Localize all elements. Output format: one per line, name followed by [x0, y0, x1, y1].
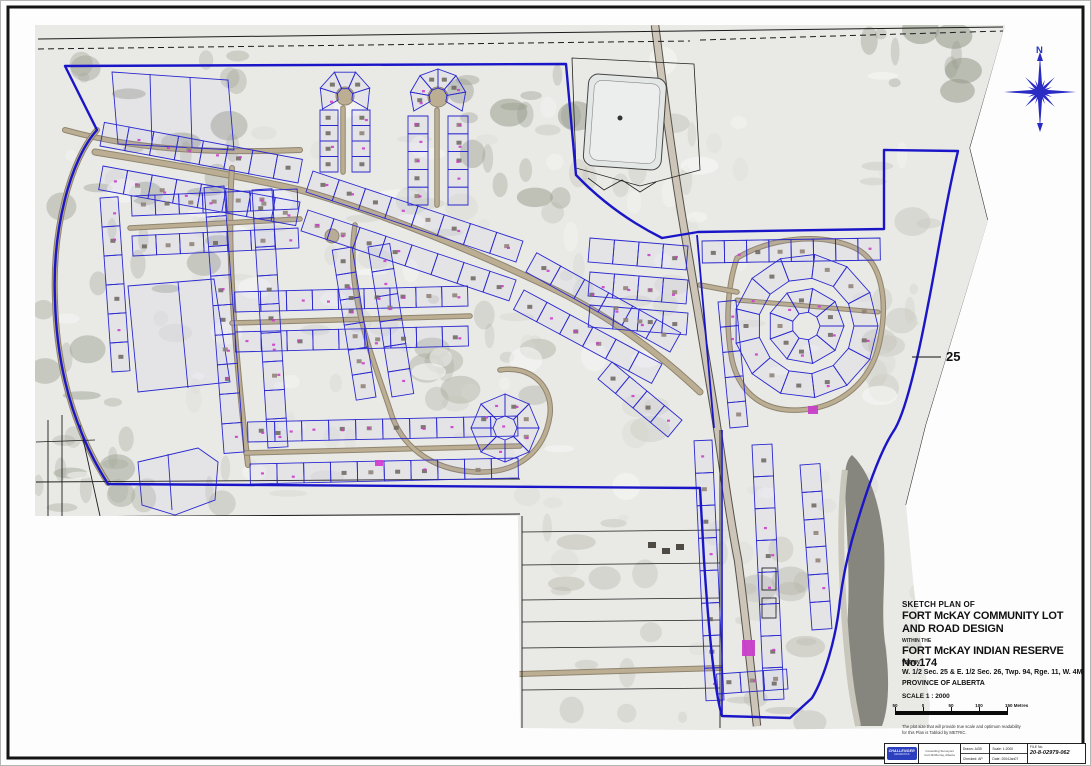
company-address: Consulting Surveyors Fort McMurray, Albe…	[919, 744, 960, 763]
terrain-patch	[330, 374, 342, 393]
lot-number	[596, 342, 599, 344]
building	[213, 241, 218, 245]
building	[726, 680, 731, 684]
lot-number	[362, 362, 365, 364]
lot-number	[402, 210, 405, 212]
lot	[277, 463, 304, 484]
lot-number	[753, 680, 756, 682]
lot-number	[316, 224, 319, 226]
building	[800, 249, 805, 253]
drawn-checked-cell: Drawn: AGB Checked: AP	[961, 744, 991, 763]
terrain-patch	[493, 173, 508, 198]
lot-number	[362, 147, 365, 149]
building	[342, 471, 347, 475]
lot-number	[114, 180, 117, 182]
terrain-patch	[891, 38, 900, 66]
lot	[313, 329, 339, 350]
scale-label: Scale:	[992, 747, 1001, 751]
lot	[448, 187, 468, 205]
lot-number	[330, 101, 333, 103]
address-line-2: Fort McMurray, Alberta	[925, 754, 955, 758]
lot-number	[113, 239, 116, 241]
terrain-patch	[541, 202, 564, 224]
scale-label-3: 100	[975, 703, 983, 708]
lot	[754, 476, 775, 509]
lot-number	[260, 200, 263, 202]
building	[393, 250, 398, 254]
lot-number	[278, 436, 281, 438]
lot-number	[225, 377, 228, 379]
lot-number	[507, 247, 510, 249]
building	[326, 116, 331, 120]
terrain-patch	[917, 218, 942, 228]
terrain-patch	[557, 534, 596, 549]
lot	[723, 351, 743, 378]
lot	[836, 238, 859, 260]
lot	[613, 240, 639, 266]
lot-number	[302, 299, 305, 301]
terrain-patch	[29, 358, 61, 384]
highlight-parcel	[375, 460, 383, 466]
terrain-patch	[618, 515, 629, 521]
lot-number	[365, 119, 368, 121]
lot	[220, 393, 242, 424]
lot	[755, 508, 776, 541]
scale-label-1: 0	[922, 703, 925, 708]
building	[828, 333, 833, 337]
lot-number	[457, 230, 460, 232]
checked-value: AP	[978, 757, 983, 761]
lot-number	[402, 380, 405, 382]
lot-number	[641, 324, 644, 326]
lot-number	[422, 90, 425, 92]
terrain-patch	[540, 97, 556, 118]
building	[761, 458, 766, 462]
building	[341, 259, 346, 263]
lot-number	[375, 342, 378, 344]
terrain-patch	[889, 78, 901, 87]
lot-number	[647, 254, 650, 256]
building	[772, 682, 777, 686]
building	[825, 268, 830, 272]
building	[769, 373, 774, 377]
lot	[104, 255, 124, 285]
building	[426, 294, 431, 298]
building	[769, 275, 774, 279]
lot-number	[731, 338, 734, 340]
lot-number	[459, 124, 462, 126]
terrain-patch	[543, 513, 552, 541]
building	[188, 201, 193, 205]
title-line-6: WITHIN	[902, 661, 1087, 666]
terrain-patch	[686, 212, 707, 223]
scale-date-cell: Scale: 1:2000 Date: 2004Jan07	[990, 744, 1027, 763]
north-label: N	[1036, 45, 1043, 56]
terrain-patch	[499, 377, 510, 390]
building	[118, 355, 123, 359]
lot-number	[672, 294, 675, 296]
lot-number	[499, 451, 502, 453]
lot-number	[701, 455, 704, 457]
lot-number	[185, 195, 188, 197]
building	[799, 350, 804, 354]
lot-number	[764, 527, 767, 529]
terrain-patch	[897, 142, 907, 169]
title-line-4: WITHIN THE	[902, 639, 1087, 644]
lot-number	[627, 289, 630, 291]
title-line-7: W. 1/2 Sec. 25 & E. 1/2 Sec. 26, Twp. 94…	[902, 669, 1087, 676]
building	[320, 183, 325, 187]
building	[359, 162, 364, 166]
building	[267, 288, 272, 292]
building	[442, 78, 447, 82]
terrain-patch	[221, 455, 231, 481]
lot	[810, 601, 832, 630]
building	[862, 338, 867, 342]
terrain-patch	[108, 479, 128, 503]
lot-number	[235, 436, 238, 438]
terrain-patch	[910, 284, 918, 295]
compass-center	[1037, 89, 1043, 95]
lot	[227, 230, 252, 251]
building	[662, 548, 670, 554]
building	[326, 147, 331, 151]
terrain-patch	[70, 335, 106, 363]
lot-number	[222, 288, 225, 290]
building	[848, 284, 853, 288]
terrain-patch	[186, 386, 202, 413]
lot	[588, 305, 614, 329]
building	[457, 141, 462, 145]
lot-number	[457, 296, 460, 298]
lot-number	[367, 427, 370, 429]
building	[778, 324, 783, 328]
lot	[408, 134, 428, 152]
building	[711, 251, 716, 255]
building	[648, 542, 656, 548]
building	[395, 470, 400, 474]
terrain-patch	[442, 396, 469, 411]
building	[272, 374, 277, 378]
building	[349, 296, 354, 300]
lot-number	[574, 330, 577, 332]
section-number: 25	[946, 349, 960, 364]
building	[799, 298, 804, 302]
lot	[274, 228, 299, 249]
building	[825, 380, 830, 384]
file-label: FILE No.	[1030, 745, 1083, 749]
terrain-patch	[796, 638, 816, 646]
lot-number	[615, 311, 618, 313]
lot	[264, 389, 286, 419]
lot-number	[547, 270, 550, 272]
building	[524, 417, 529, 421]
building	[755, 250, 760, 254]
terrain-patch	[169, 625, 198, 646]
scale-label-0: 50	[892, 703, 897, 708]
building	[326, 162, 331, 166]
building	[425, 218, 430, 222]
terrain-patch	[418, 607, 434, 618]
lot-number	[290, 430, 293, 432]
lot-number	[485, 416, 488, 418]
lot-number	[419, 141, 422, 143]
terrain-patch	[706, 133, 722, 153]
building	[476, 468, 481, 472]
lot	[372, 269, 398, 297]
compass-south-arrow	[1037, 123, 1043, 132]
lot-number	[869, 248, 872, 250]
drawn-label: Drawn:	[963, 747, 974, 751]
lot-number	[325, 184, 328, 186]
lot	[438, 459, 465, 480]
building	[778, 250, 783, 254]
lot-number	[272, 319, 275, 321]
building	[541, 266, 546, 270]
building	[283, 211, 288, 215]
date-value: 2004Jan07	[1001, 757, 1018, 761]
plot-note-2: for this Plan is Tabloid by METRIC.	[902, 730, 967, 735]
terrain-patch	[412, 363, 446, 380]
building	[221, 318, 226, 322]
lot-number	[163, 191, 166, 193]
lot-number	[788, 309, 791, 311]
scale-label-2: 50	[948, 703, 953, 708]
lot	[249, 150, 278, 178]
lot	[700, 570, 719, 603]
lot-number	[167, 147, 170, 149]
lot-number	[261, 472, 264, 474]
terrain-patch	[546, 154, 564, 170]
terrain-patch	[640, 622, 662, 642]
lot-number	[667, 420, 670, 422]
highlight-parcel	[808, 406, 818, 414]
checked-label: Checked:	[963, 757, 977, 761]
building	[744, 324, 749, 328]
terrain-patch	[383, 671, 406, 688]
terrain-patch	[67, 472, 93, 479]
building	[702, 487, 707, 491]
lot-number	[822, 587, 825, 589]
lot-number	[383, 260, 386, 262]
lot	[209, 245, 231, 276]
lot-number	[113, 212, 116, 214]
building	[736, 412, 741, 416]
lot-number	[602, 286, 605, 288]
building	[355, 83, 360, 87]
title-line-1: SKETCH PLAN OF	[902, 601, 1087, 609]
terrain-patch	[104, 398, 122, 407]
building	[661, 333, 666, 337]
lot-number	[451, 426, 454, 428]
lot-number	[277, 374, 280, 376]
terrain-patch	[563, 222, 578, 252]
lot-number	[833, 334, 836, 336]
lot	[808, 574, 830, 603]
logo-subtext: GEOMATICS	[894, 754, 909, 757]
terrain-patch	[483, 518, 497, 547]
terrain-patch	[731, 116, 747, 129]
lot-number	[351, 193, 354, 195]
lot-number	[227, 350, 230, 352]
terrain-patch	[500, 103, 527, 111]
lot	[699, 538, 718, 571]
terrain-patch	[443, 569, 468, 598]
company-logo-cell: CHALLENGER GEOMATICS	[885, 744, 919, 763]
lot	[261, 331, 287, 352]
lot-number	[417, 160, 420, 162]
terrain-patch	[476, 134, 498, 145]
scale-label-4: 150 Metres	[1005, 703, 1028, 708]
building	[613, 306, 618, 310]
terrain-patch	[560, 697, 584, 723]
lot-number	[755, 353, 758, 355]
lot-number	[216, 154, 219, 156]
lot-number	[348, 287, 351, 289]
building	[326, 131, 331, 135]
lot-number	[292, 476, 295, 478]
lot-number	[327, 301, 330, 303]
building	[276, 431, 281, 435]
lot-number	[384, 283, 387, 285]
building	[359, 116, 364, 120]
lot	[254, 217, 276, 247]
building	[375, 337, 380, 341]
building	[286, 166, 291, 170]
building	[766, 554, 771, 558]
lot-number	[239, 156, 242, 158]
lot	[286, 290, 312, 311]
lot-number	[631, 395, 634, 397]
building	[815, 558, 820, 562]
lot	[437, 417, 464, 438]
terrain-patch	[678, 711, 687, 722]
lot-number	[457, 178, 460, 180]
terrain-patch	[627, 190, 641, 214]
terrain-patch	[262, 654, 275, 678]
lot-number	[495, 405, 498, 407]
lot-number	[423, 428, 426, 430]
building	[353, 334, 358, 338]
lot-number	[419, 195, 422, 197]
terrain-patch	[881, 320, 920, 327]
lot-number	[397, 250, 400, 252]
lot	[100, 197, 120, 227]
terrain-patch	[332, 552, 360, 579]
lot	[588, 238, 614, 264]
building	[453, 335, 458, 339]
terrain-patch	[617, 704, 636, 723]
terrain-patch	[79, 73, 90, 83]
building	[417, 98, 422, 102]
building	[212, 200, 217, 204]
title-line-2: FORT McKAY COMMUNITY LOT	[902, 611, 1087, 623]
terrain-patch	[548, 576, 585, 591]
lot	[725, 376, 745, 403]
lot-number	[389, 308, 392, 310]
lot-number	[515, 406, 518, 408]
building	[368, 470, 373, 474]
lot-number	[768, 587, 771, 589]
lot-number	[273, 349, 276, 351]
building	[527, 305, 532, 309]
date-label: Date:	[992, 757, 1000, 761]
lot-number	[209, 202, 212, 204]
terrain-patch	[862, 386, 897, 406]
terrain-patch	[226, 50, 249, 61]
building	[367, 241, 372, 245]
building	[828, 315, 833, 319]
terrain-patch	[251, 126, 277, 139]
terrain-patch	[733, 158, 749, 181]
lot-number	[287, 214, 290, 216]
lot	[718, 300, 738, 327]
terrain-patch	[34, 475, 44, 497]
lot-number	[137, 139, 140, 141]
building	[415, 176, 420, 180]
lot-large	[112, 72, 234, 150]
lot-number	[752, 300, 755, 302]
lot	[312, 289, 338, 310]
building	[347, 192, 352, 196]
lot-number	[827, 385, 830, 387]
lot-number	[423, 468, 426, 470]
building	[646, 406, 651, 410]
lot-number	[420, 102, 423, 104]
building	[394, 426, 399, 430]
terrain-patch	[793, 710, 826, 734]
building	[452, 86, 457, 90]
lot-number	[272, 344, 275, 346]
building	[471, 276, 476, 280]
terrain-patch	[118, 426, 133, 451]
lot	[304, 462, 331, 483]
lot-number	[188, 150, 191, 152]
building	[452, 227, 457, 231]
lot-number	[458, 337, 461, 339]
building	[330, 83, 335, 87]
terrain-patch	[448, 514, 476, 537]
lot	[273, 189, 298, 210]
building	[611, 377, 616, 381]
scale-bar: 50 0 50 100 150 Metres	[895, 703, 1015, 717]
lot-number	[459, 146, 462, 148]
building	[672, 290, 677, 294]
lot	[352, 141, 370, 157]
title-line-8: PROVINCE OF ALBERTA	[902, 680, 1087, 687]
terrain-patch	[32, 300, 54, 319]
lot-number	[297, 340, 300, 342]
plot-note-1: The plot size that will provide true sca…	[902, 724, 1021, 729]
building	[189, 242, 194, 246]
lot-number	[331, 146, 334, 148]
terrain-patch	[216, 648, 250, 672]
building	[813, 531, 818, 535]
lot-number	[818, 305, 821, 307]
building	[142, 244, 147, 248]
lot-number	[526, 437, 529, 439]
lot-number	[402, 297, 405, 299]
lot	[368, 244, 394, 272]
terrain-patch	[867, 72, 898, 80]
title-line-3: AND ROAD DESIGN	[902, 624, 1087, 636]
building	[676, 544, 684, 550]
lot	[260, 291, 286, 312]
lot-number	[738, 254, 741, 256]
plan-sheet: 25 N SKETCH PLAN OF FORT McKAY COMMUNITY…	[0, 0, 1091, 766]
lot-number	[772, 649, 775, 651]
lot-number	[771, 554, 774, 556]
